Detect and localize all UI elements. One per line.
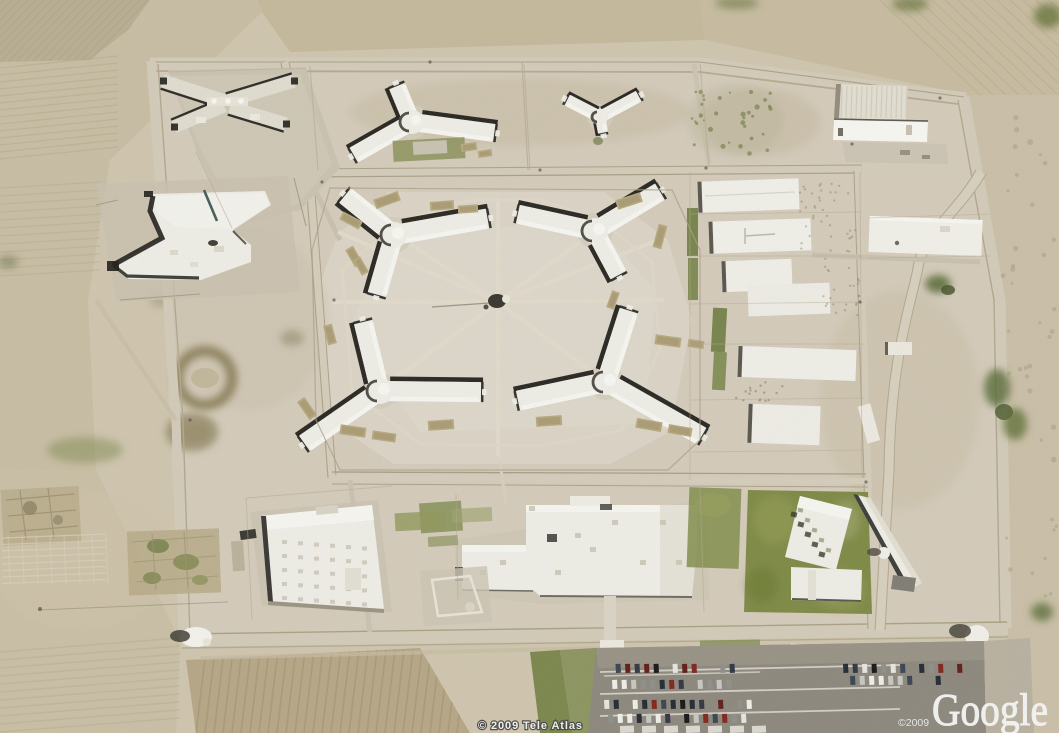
svg-text:Google: Google <box>932 685 1048 733</box>
svg-text:© 2009 Tele Atlas: © 2009 Tele Atlas <box>478 720 582 732</box>
svg-text:©2009: ©2009 <box>898 717 929 729</box>
